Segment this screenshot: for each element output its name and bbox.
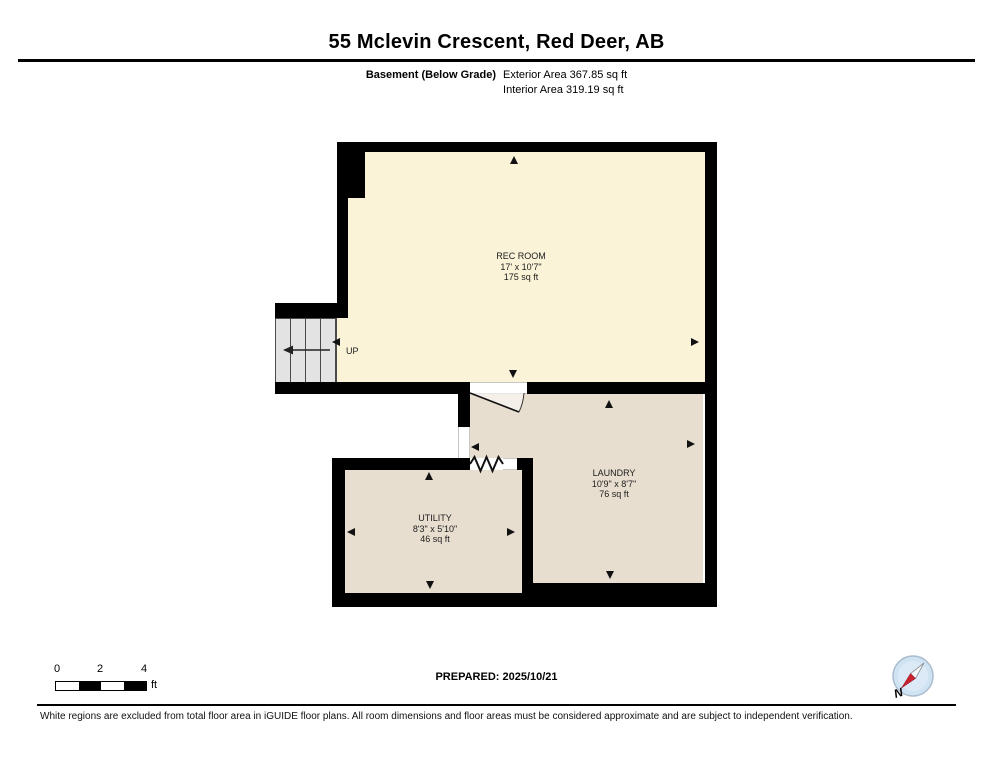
footer-divider-rule — [37, 704, 956, 706]
wall-utility-top — [332, 458, 470, 470]
dimension-arrow-up-icon — [425, 472, 433, 480]
stairs-up-label: UP — [346, 346, 359, 356]
dimension-arrow-up-icon — [605, 400, 613, 408]
dimension-arrow-down-icon — [606, 571, 614, 579]
room-dimensions: 8'3" x 5'10" — [413, 524, 457, 535]
wall-top — [337, 142, 717, 152]
room-name: REC ROOM — [496, 251, 546, 262]
room-name: LAUNDRY — [592, 468, 636, 479]
prepared-date: PREPARED: 2025/10/21 — [0, 671, 993, 683]
dimension-arrow-left-icon — [347, 528, 355, 536]
wall-right — [705, 142, 717, 607]
wall-stairs-top — [275, 303, 348, 318]
room-label-laundry: LAUNDRY 10'9" x 8'7" 76 sq ft — [592, 468, 636, 500]
dimension-arrow-right-icon — [687, 440, 695, 448]
room-name: UTILITY — [413, 513, 457, 524]
scale-bar-segment — [79, 682, 102, 690]
room-dimensions: 10'9" x 8'7" — [592, 479, 636, 490]
wall-utility-left — [332, 458, 345, 607]
room-label-utility: UTILITY 8'3" x 5'10" 46 sq ft — [413, 513, 457, 545]
wall-bottom-laundry — [522, 583, 717, 607]
dimension-arrow-left-icon — [471, 443, 479, 451]
scale-bar-segment — [56, 682, 79, 690]
wall-recroom-bottom-right — [527, 382, 717, 394]
floor-plan: UP REC ROOM 17' x 10'7" 175 sq ft LAUNDR… — [0, 0, 993, 768]
room-dimensions: 17' x 10'7" — [496, 262, 546, 273]
floor-plan-page: 55 Mclevin Crescent, Red Deer, AB Baseme… — [0, 0, 993, 768]
room-area: 46 sq ft — [413, 534, 457, 545]
door-opening — [470, 382, 527, 394]
wall-opening-gap — [503, 458, 517, 470]
wall-opening-vertical — [458, 427, 470, 458]
dimension-arrow-left-icon — [332, 338, 340, 346]
dimension-arrow-up-icon — [510, 156, 518, 164]
room-label-rec-room: REC ROOM 17' x 10'7" 175 sq ft — [496, 251, 546, 283]
wall-bottom-utility — [332, 593, 533, 607]
scale-bar-segment — [124, 682, 147, 690]
wall-laundry-left-stub — [458, 394, 470, 427]
wall-recroom-bottom-left — [275, 382, 470, 394]
dimension-arrow-right-icon — [507, 528, 515, 536]
disclaimer-text: White regions are excluded from total fl… — [40, 711, 853, 722]
dimension-arrow-down-icon — [509, 370, 517, 378]
zigzag-opening-bg — [470, 458, 503, 470]
scale-bar-segment — [101, 682, 124, 690]
dimension-arrow-down-icon — [426, 581, 434, 589]
wall-corner-notch — [337, 142, 365, 198]
room-area: 76 sq ft — [592, 489, 636, 500]
stairs — [275, 318, 337, 383]
dimension-arrow-right-icon — [691, 338, 699, 346]
room-area: 175 sq ft — [496, 272, 546, 283]
